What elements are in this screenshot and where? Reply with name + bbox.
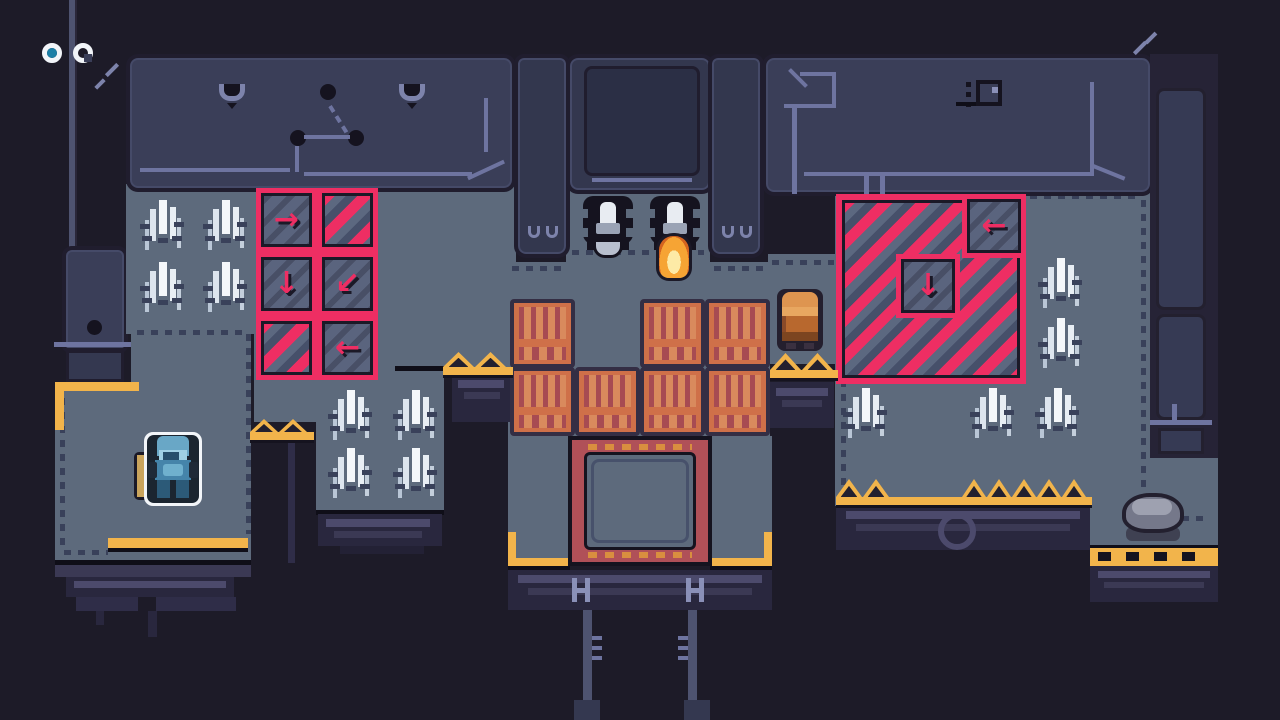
orb-core — [84, 54, 92, 62]
arrow-glyph: → — [274, 205, 299, 235]
arrow-glyph: ← — [335, 333, 360, 363]
progress-orb-filled — [42, 43, 62, 63]
sprite-layer — [0, 0, 1280, 720]
rock-highlight — [1132, 499, 1172, 515]
game-scene[interactable]: →↓↙←←↓ — [0, 0, 1280, 720]
player-belly — [163, 464, 183, 476]
player-character[interactable] — [144, 432, 202, 506]
npc-foot — [804, 343, 814, 349]
player-leg — [176, 480, 189, 498]
npc-character[interactable] — [777, 289, 823, 351]
npc-torso — [782, 316, 818, 332]
npc-band — [782, 307, 818, 316]
npc-foot — [786, 343, 796, 349]
arrow-glyph: ↓ — [274, 269, 299, 299]
progress-orb-empty — [73, 43, 93, 63]
arrow-glyph: ← — [981, 211, 1006, 241]
boulder[interactable] — [1120, 485, 1186, 545]
player-visor — [159, 450, 187, 460]
player-arm — [189, 462, 198, 478]
arrow-glyph: ↓ — [915, 271, 940, 301]
pad-shade — [137, 455, 144, 497]
arrow-glyph: ↙ — [335, 269, 360, 299]
npc-hood — [782, 292, 818, 307]
orb-fill — [47, 48, 57, 58]
npc-skirt — [782, 332, 818, 341]
player-leg — [157, 480, 170, 498]
player-arm — [148, 462, 157, 478]
